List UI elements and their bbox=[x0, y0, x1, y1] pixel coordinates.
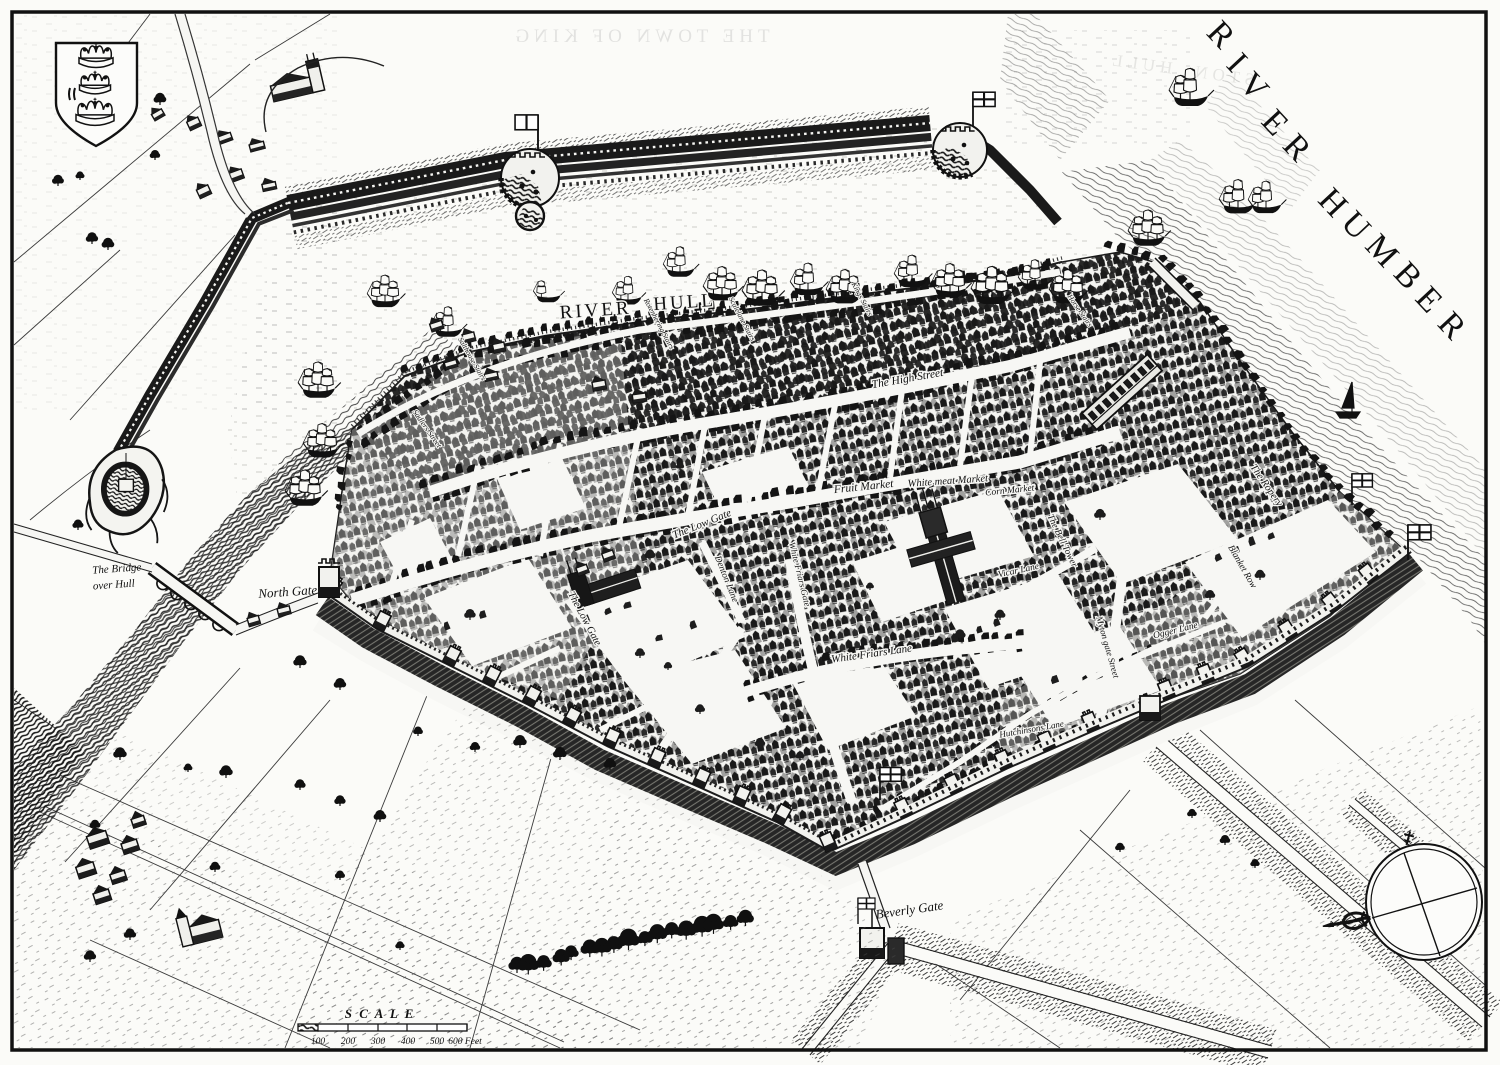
svg-text:S C A L E: S C A L E bbox=[345, 1006, 416, 1021]
svg-text:100: 100 bbox=[311, 1037, 326, 1047]
svg-text:300: 300 bbox=[370, 1037, 386, 1047]
svg-text:500: 500 bbox=[430, 1037, 445, 1047]
svg-text:400: 400 bbox=[401, 1037, 416, 1047]
svg-text:THE TOWN OF KING: THE TOWN OF KING bbox=[510, 26, 769, 47]
svg-text:600 Feet: 600 Feet bbox=[448, 1037, 482, 1047]
svg-text:HULL: HULL bbox=[653, 290, 717, 315]
svg-text:200: 200 bbox=[341, 1037, 356, 1047]
